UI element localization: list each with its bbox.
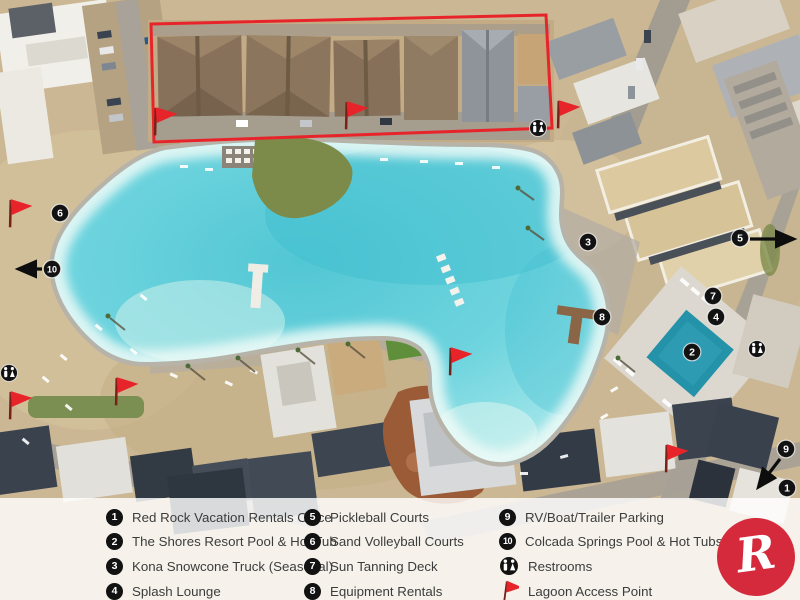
legend-column-1: 1Red Rock Vacation Rentals Office2The Sh… — [106, 505, 337, 600]
legend-item: 1Red Rock Vacation Rentals Office — [106, 505, 337, 530]
legend-badge-2: 2 — [106, 533, 123, 550]
legend-badge-1: 1 — [106, 509, 123, 526]
legend-badge-7: 7 — [304, 558, 321, 575]
legend-badge-9: 9 — [499, 509, 516, 526]
red-rock-logo: R — [717, 518, 795, 596]
legend-badge-10: 10 — [499, 533, 516, 550]
legend-label: Equipment Rentals — [330, 584, 442, 599]
legend-item: 6Sand Volleyball Courts — [304, 530, 464, 555]
legend-badge-6: 6 — [304, 533, 321, 550]
legend-item: 2The Shores Resort Pool & Hot Tub — [106, 530, 337, 555]
legend-label: Kona Snowcone Truck (Seasonal) — [132, 559, 333, 574]
logo-letter: R — [733, 524, 779, 584]
legend-label: Pickleball Courts — [330, 510, 429, 525]
legend-badge-4: 4 — [106, 583, 123, 600]
legend-item: 8Equipment Rentals — [304, 579, 464, 600]
legend-badge-8: 8 — [304, 583, 321, 600]
legend-badge-5: 5 — [304, 509, 321, 526]
legend-label: Restrooms — [528, 559, 592, 574]
legend-label: Sun Tanning Deck — [330, 559, 438, 574]
restroom-icon — [499, 555, 519, 577]
resort-map: 12345678910 1Red Rock Vacation Rentals O… — [0, 0, 800, 600]
legend-label: Sand Volleyball Courts — [330, 534, 464, 549]
legend-item: Restrooms — [499, 554, 722, 579]
legend-column-2: 5Pickleball Courts6Sand Volleyball Court… — [304, 505, 464, 600]
flag-icon — [499, 580, 519, 600]
legend-item: 3Kona Snowcone Truck (Seasonal) — [106, 554, 337, 579]
legend-item: Lagoon Access Point — [499, 579, 722, 600]
legend-item: 5Pickleball Courts — [304, 505, 464, 530]
legend-label: Red Rock Vacation Rentals Office — [132, 510, 332, 525]
legend-item: 9RV/Boat/Trailer Parking — [499, 505, 722, 530]
legend-item: 4Splash Lounge — [106, 579, 337, 600]
legend-label: RV/Boat/Trailer Parking — [525, 510, 664, 525]
legend-badge-3: 3 — [106, 558, 123, 575]
legend-column-3: 9RV/Boat/Trailer Parking10Colcada Spring… — [499, 505, 722, 600]
legend-label: Colcada Springs Pool & Hot Tubs — [525, 534, 722, 549]
legend-label: Splash Lounge — [132, 584, 221, 599]
map-legend: 1Red Rock Vacation Rentals Office2The Sh… — [0, 498, 800, 600]
legend-item: 7Sun Tanning Deck — [304, 554, 464, 579]
legend-item: 10Colcada Springs Pool & Hot Tubs — [499, 530, 722, 555]
legend-label: Lagoon Access Point — [528, 584, 652, 599]
